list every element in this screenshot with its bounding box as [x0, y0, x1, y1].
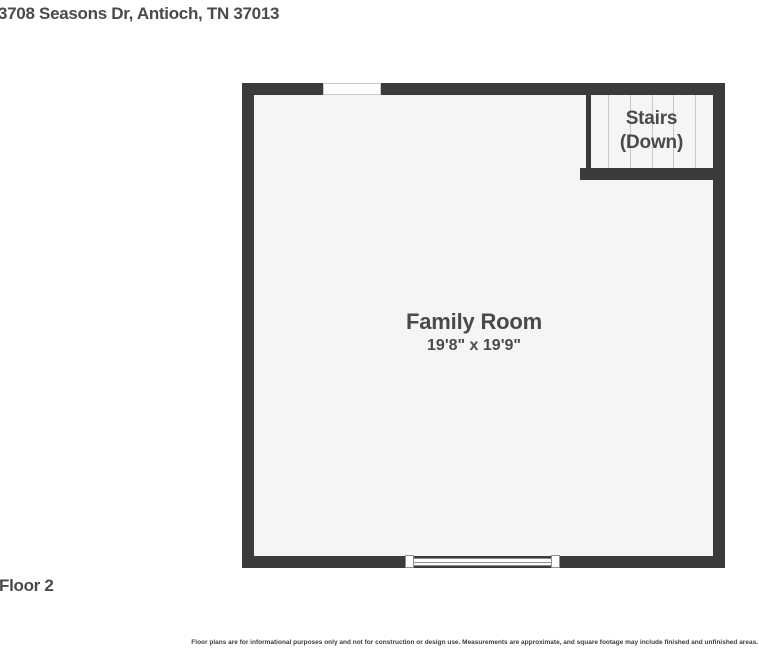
room-label: Family Room 19'8" x 19'9"	[406, 309, 542, 357]
stairs-label: Stairs (Down)	[590, 107, 713, 155]
floor-plan-page: 3708 Seasons Dr, Antioch, TN 37013 Stair…	[0, 0, 759, 655]
floor-plan: Stairs (Down) Family Room 19'8" x 19'9"	[242, 83, 725, 568]
wall-opening	[323, 83, 381, 95]
stairs-label-line1: Stairs	[590, 107, 713, 131]
stairs-label-line2: (Down)	[590, 131, 713, 155]
room-dimensions: 19'8" x 19'9"	[406, 335, 542, 357]
stairs-wall-bottom	[580, 168, 713, 180]
page-title: 3708 Seasons Dr, Antioch, TN 37013	[0, 4, 279, 24]
disclaimer-text: Floor plans are for informational purpos…	[191, 639, 758, 646]
room-name: Family Room	[406, 309, 542, 335]
floor-label: Floor 2	[0, 576, 54, 596]
window-frame-end-right	[551, 555, 560, 568]
window	[413, 558, 552, 566]
